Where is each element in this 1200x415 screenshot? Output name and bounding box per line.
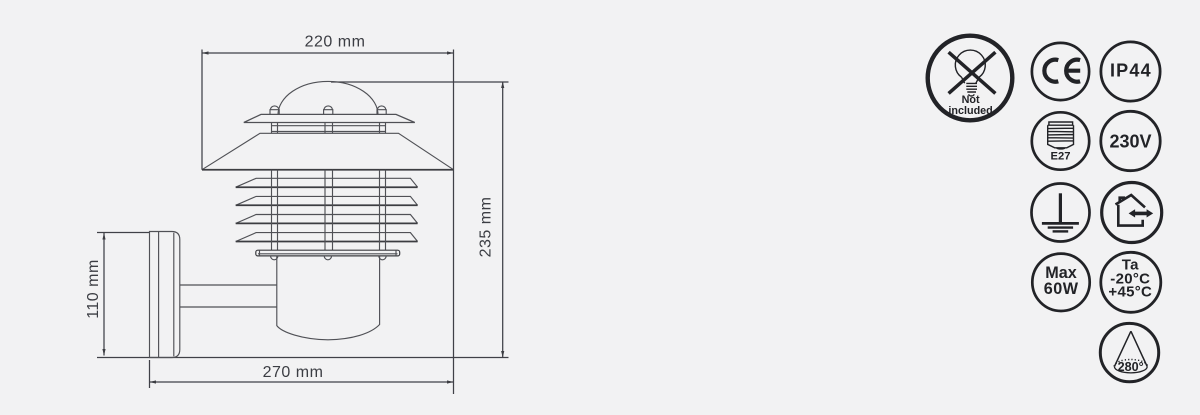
svg-text:IP44: IP44 <box>1110 60 1152 80</box>
svg-text:235 mm: 235 mm <box>478 197 495 258</box>
svg-text:+45°C: +45°C <box>1108 284 1152 301</box>
svg-text:220 mm: 220 mm <box>305 34 366 51</box>
svg-text:included: included <box>948 105 992 117</box>
svg-text:280°: 280° <box>1118 360 1144 374</box>
svg-text:230V: 230V <box>1109 131 1151 151</box>
svg-text:E27: E27 <box>1051 151 1071 163</box>
svg-text:60W: 60W <box>1044 280 1079 298</box>
svg-text:110 mm: 110 mm <box>85 259 102 319</box>
svg-text:270 mm: 270 mm <box>263 364 324 381</box>
